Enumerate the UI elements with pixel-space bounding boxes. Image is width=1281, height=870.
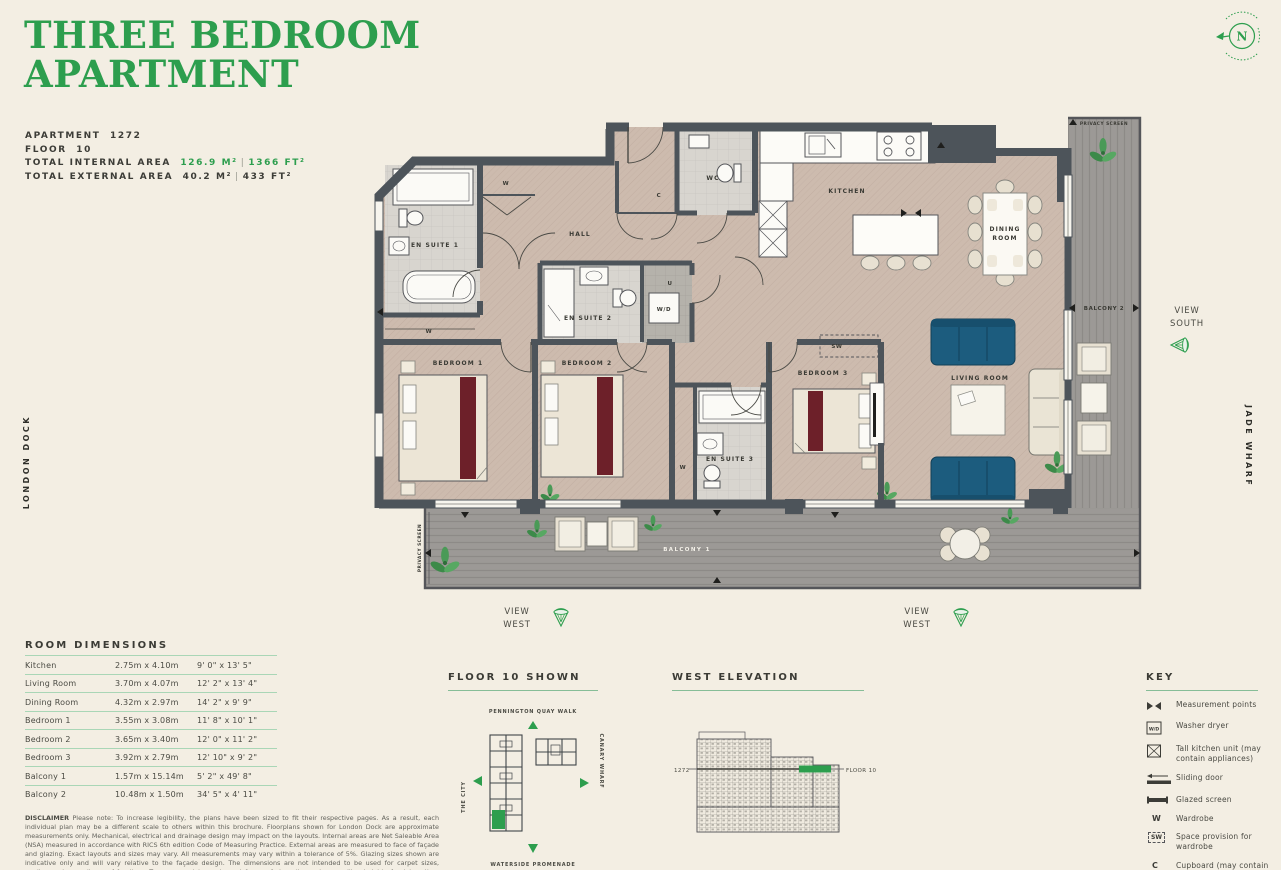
measurement-points-icon [1146,700,1176,712]
room-label-balcony-2: BALCONY 2 [1084,306,1124,312]
sofa-blue-bottom [931,457,1015,503]
svg-text:SOUTH: SOUTH [1170,319,1204,329]
svg-text:VIEW: VIEW [1174,306,1199,316]
disclaimer-text: Please note: To increase legibility, the… [25,814,439,870]
room-dimensions-table: ROOM DIMENSIONS Kitchen 2.75m x 4.10m 9'… [25,640,277,803]
space-wardrobe-label: SW [831,344,842,350]
room-label-bedroom-2: BEDROOM 2 [562,360,613,367]
wall-block [928,125,996,163]
context-label-london-dock: LONDON DOCK [22,415,31,509]
floor-shown-title: FLOOR 10 SHOWN [448,672,598,691]
west-elevation-title: WEST ELEVATION [672,672,864,691]
room-label-wc: WC [706,175,719,182]
site-building-right [536,739,576,765]
key-item-glazed-screen: Glazed screen [1146,795,1272,805]
direction-label-left: THE CITY [461,781,467,813]
internal-area-imperial: 1366 FT² [248,158,305,168]
glazed-screen-icon [1146,795,1176,805]
view-west-marker-2: VIEW WEST [903,607,968,630]
east-arrow [580,778,589,788]
wardrobe-label: W [503,181,510,187]
washer-dryer-icon: W/D [1146,721,1176,735]
key-item-sliding-door: Sliding door [1146,773,1272,786]
street-label-bottom: WATERSIDE PROMENADE [490,862,575,868]
external-area-label: TOTAL EXTERNAL AREA [25,172,173,182]
external-area-imperial: 433 FT² [243,172,292,182]
tv-screen [873,393,876,437]
wardrobe-glyph: W [1146,814,1176,824]
key-item-measurement-points: Measurement points [1146,700,1272,712]
coffee-table [951,385,1005,435]
room-label-en-suite-1: EN SUITE 1 [411,242,459,249]
table-row: Dining Room 4.32m x 2.97m 14' 2" x 9' 9" [25,692,277,711]
street-label-top: PENNINGTON QUAY WALK [489,709,578,715]
apartment-number: 1272 [110,131,141,141]
key-item-cupboard: C Cupboard (may contain plant) [1146,861,1272,870]
tall-kitchen-unit-icon [1146,744,1176,764]
disclaimer: DISCLAIMER Please note: To increase legi… [25,814,439,870]
elevation-apartment-label: 1272 [674,768,690,774]
room-label-en-suite-2: EN SUITE 2 [564,315,612,322]
cupboard-glyph: C [1146,861,1176,870]
sofa-cream [1029,369,1069,455]
floor-plan: EN SUITE 1 HALL WC EN SUITE 2 KITCHEN DI… [365,105,1225,635]
internal-area-line: TOTAL INTERNAL AREA 126.9 M²|1366 FT² [25,157,306,171]
wall-pier [520,499,540,514]
west-elevation-section: WEST ELEVATION 1272 FL [672,672,878,861]
south-arrow [528,844,538,853]
utility-label: U [667,281,672,287]
table-row: Bedroom 1 3.55m x 3.08m 11' 8" x 10' 1" [25,711,277,730]
apartment-number-line: APARTMENT 1272 [25,130,306,144]
svg-text:VIEW: VIEW [904,607,929,617]
room-label-bedroom-1: BEDROOM 1 [433,360,484,367]
wardrobe-label: W [426,329,433,335]
wall-pier [1053,499,1068,514]
room-label-balcony-1: BALCONY 1 [663,547,711,553]
cupboard-label: C [657,193,662,199]
sliding-door-icon [1146,773,1176,786]
floor-number: 10 [76,145,92,155]
apartment-label: APARTMENT [25,131,101,141]
wall-pier [785,499,803,514]
balcony-2-furniture [1077,343,1111,455]
tall-kitchen-units [759,201,787,257]
bedroom-1-furniture [399,361,487,495]
elevation-floor-label: FLOOR 10 [846,768,877,774]
svg-text:VIEW: VIEW [504,607,529,617]
room-label-hall: HALL [569,231,591,238]
context-label-jade-wharf: JADE WHARF [1244,405,1253,487]
key-item-washer-dryer: W/D Washer dryer [1146,721,1272,735]
highlighted-floor-10 [799,766,831,773]
page-title-line2: APARTMENT [24,55,421,94]
table-row: Kitchen 2.75m x 4.10m 9' 0" x 13' 5" [25,655,277,674]
key-title: KEY [1146,672,1258,691]
view-south-marker: VIEW SOUTH [1170,306,1204,352]
internal-area-label: TOTAL INTERNAL AREA [25,158,171,168]
privacy-screen-label-top: PRIVACY SCREEN [1080,121,1128,127]
table-row: Bedroom 3 3.92m x 2.79m 12' 10" x 9' 2" [25,748,277,767]
compass-north-letter: N [1237,30,1248,44]
kitchen-island [853,215,938,270]
balcony-1-deck [425,508,1140,588]
wardrobe-label: W [680,465,687,471]
table-row: Bedroom 2 3.65m x 3.40m 12' 0" x 11' 2" [25,729,277,748]
room-label-en-suite-3: EN SUITE 3 [706,456,754,463]
room-label-bedroom-3: BEDROOM 3 [798,370,849,377]
svg-text:W/D: W/D [1149,727,1160,733]
west-arrow [473,776,482,786]
room-label-living-room: LIVING ROOM [951,375,1009,382]
external-area-line: TOTAL EXTERNAL AREA 40.2 M²|433 FT² [25,171,306,185]
room-label-kitchen: KITCHEN [828,188,865,195]
room-label-dining-2: ROOM [992,235,1017,242]
room-label-dining-1: DINING [989,226,1020,233]
north-arrow [528,721,538,729]
elevation-building [697,732,839,832]
elevation-drawing: 1272 FLOOR 10 [672,697,878,857]
svg-text:WEST: WEST [503,620,531,630]
table-row: Balcony 1 1.57m x 15.14m 5' 2" x 49' 8" [25,766,277,785]
disclaimer-label: DISCLAIMER [25,814,69,822]
floor-number-line: FLOOR 10 [25,144,306,158]
room-dimensions-title: ROOM DIMENSIONS [25,640,277,655]
key-legend: KEY Measurement points W/D Washer dryer … [1146,672,1272,870]
view-west-marker-1: VIEW WEST [503,607,568,630]
site-plan: PENNINGTON QUAY WALK [448,697,616,870]
north-compass-icon: N [1212,6,1270,64]
brochure-page: THREE BEDROOM APARTMENT APARTMENT 1272 F… [0,0,1281,870]
highlighted-apartment-unit [492,810,505,829]
svg-text:WEST: WEST [903,620,931,630]
space-provision-wardrobe-glyph: SW [1146,832,1176,852]
apartment-info: APARTMENT 1272 FLOOR 10 TOTAL INTERNAL A… [25,130,306,184]
bedroom-2-furniture [541,361,623,477]
table-row: Balcony 2 10.48m x 1.50m 34' 5" x 4' 11" [25,785,277,804]
floor-shown-section: FLOOR 10 SHOWN PENNINGTON QUAY WALK [448,672,616,870]
external-area-metric: 40.2 M² [183,172,232,182]
direction-label-right: CANARY WHARF [598,734,604,789]
privacy-screen-label-left: PRIVACY SCREEN [417,524,423,572]
key-item-wardrobe: W Wardrobe [1146,814,1272,824]
floor-label: FLOOR [25,145,67,155]
page-title-line1: THREE BEDROOM [24,16,421,55]
key-item-space-provision-wardrobe: SW Space provision for wardrobe [1146,832,1272,852]
sofa-blue-top [931,319,1015,365]
page-title: THREE BEDROOM APARTMENT [24,16,421,94]
table-row: Living Room 3.70m x 4.07m 12' 2" x 13' 4… [25,674,277,693]
washer-dryer-label: W/D [657,307,671,313]
key-item-tall-kitchen-unit: Tall kitchen unit (may contain appliance… [1146,744,1272,764]
internal-area-metric: 126.9 M² [180,158,237,168]
tv-unit [870,383,884,445]
